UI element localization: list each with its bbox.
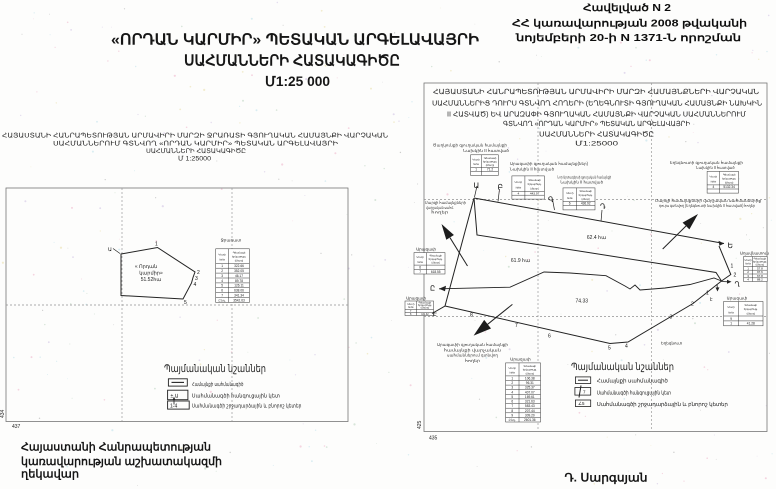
svg-text:96.31: 96.31	[526, 381, 534, 385]
svg-text:437: 437	[12, 424, 21, 430]
svg-text:5: 5	[221, 284, 223, 288]
svg-text:Գծամասի: Գծամասի	[528, 179, 541, 182]
svg-text:126.11: 126.11	[234, 284, 244, 288]
svg-text:Գծամասի: Գծամասի	[745, 304, 758, 307]
svg-text:5132.34: 5132.34	[723, 185, 735, 189]
svg-text:Պայմանական նշաններ: Պայմանական նշաններ	[164, 363, 266, 375]
svg-text:1: 1	[221, 264, 223, 268]
svg-text:(մետր): (մետր)	[486, 164, 495, 167]
svg-text:(մետր): (մետր)	[530, 188, 539, 191]
svg-text:207.44: 207.44	[525, 409, 535, 413]
svg-text:(մետր): (մետր)	[431, 262, 440, 265]
svg-text:3: 3	[670, 315, 673, 321]
svg-text:Գծամասի: Գծամասի	[233, 251, 246, 254]
svg-text:Արազափ: Արազափ	[510, 357, 531, 362]
svg-text:322.66: 322.66	[234, 264, 244, 268]
svg-text:51.52հա: 51.52հա	[141, 277, 162, 283]
svg-text:7: 7	[583, 390, 586, 395]
svg-text:երկարությ.: երկարությ.	[744, 308, 758, 311]
svg-text:ղեկավար: ղեկավար	[21, 469, 79, 481]
svg-text:Նախկին II հատված: Նախկին II հատված	[510, 167, 555, 172]
svg-text:Նախկին II հատված: Նախկին II հատված	[696, 165, 735, 170]
svg-text:Արազափ: Արազափ	[416, 246, 436, 251]
svg-text:Կետի: Կետի	[727, 305, 735, 309]
svg-text:Ա: Ա	[474, 181, 480, 190]
svg-text:89.78: 89.78	[235, 279, 243, 283]
svg-text:1-4: 1-4	[170, 403, 177, 409]
svg-text:1: 1	[730, 322, 732, 326]
svg-text:5: 5	[184, 300, 187, 306]
svg-text:սահմաններում գտնվող: սահմաններում գտնվող	[447, 353, 498, 358]
svg-text:4: 4	[625, 344, 628, 350]
svg-text:74.33: 74.33	[576, 299, 589, 305]
svg-text:Կետի: Կետի	[515, 180, 523, 184]
svg-text:Ընդ.: Ընդ.	[219, 298, 226, 302]
svg-text:6: 6	[548, 334, 551, 340]
svg-text:2: 2	[511, 381, 513, 385]
svg-text:Արազափի գյուղական համայնք(ներ): Արազափի գյուղական համայնք(ներ)	[510, 161, 589, 166]
svg-text:638.06: 638.06	[234, 289, 244, 293]
svg-text:ՀՀ կառավարության 2008 թվականի: ՀՀ կառավարության 2008 թվականի	[512, 19, 747, 30]
svg-text:№№: №№	[417, 261, 423, 264]
svg-text:երկարությ.: երկարությ.	[523, 369, 537, 372]
svg-text:88.2: 88.2	[757, 278, 763, 282]
svg-text:ՍԱՀՄԱՆՆԵՐՈՒՄ ԳՏՆՎՈՂ «ՈՐԴԱՆ ԿԱՐ: ՍԱՀՄԱՆՆԵՐՈՒՄ ԳՏՆՎՈՂ «ՈՐԴԱՆ ԿԱՐՄԻՐ» ՊԵՏԱԿ…	[53, 140, 339, 148]
svg-text:ՍԱՀՄԱՆՆԵՐԻՑ ԴՈՒՐՍ ԳՏՆՎՈՂ ՀՈՂԵՐ: ՍԱՀՄԱՆՆԵՐԻՑ ԴՈՒՐՍ ԳՏՆՎՈՂ ՀՈՂԵՐԻ (ԵՂԵԳՆՈՒ…	[432, 100, 762, 108]
svg-text:6: 6	[221, 289, 223, 293]
svg-text:(մետր): (մետր)	[235, 260, 244, 263]
svg-text:106.38: 106.38	[525, 377, 535, 381]
svg-text:Սահմանագծի հանգուցային կետ: Սահմանագծի հանգուցային կետ	[597, 390, 671, 396]
svg-text:Կետի: Կետի	[218, 252, 226, 256]
svg-text:(մետր): (մետր)	[581, 198, 590, 201]
svg-text:Գծամասի: Գծամասի	[524, 365, 537, 368]
svg-text:6: 6	[569, 202, 571, 206]
svg-text:Կետի: Կետի	[566, 191, 574, 195]
svg-text:Ը: Ը	[430, 285, 435, 293]
svg-text:583.43: 583.43	[525, 404, 535, 408]
svg-text:9: 9	[511, 413, 513, 417]
svg-text:Նախկին II հատված: Նախկին II հատված	[560, 180, 603, 185]
svg-text:4: 4	[194, 282, 197, 288]
svg-text:Ղ: Ղ	[735, 281, 741, 289]
svg-text:Կետի: Կետի	[710, 175, 718, 179]
svg-text:434: 434	[0, 409, 6, 418]
svg-text:№№: №№	[516, 187, 522, 190]
svg-text:Մ1:25000: Մ1:25000	[575, 140, 619, 148]
svg-text:Ընդ.: Ընդ.	[509, 418, 516, 422]
svg-text:46.17: 46.17	[235, 274, 243, 278]
svg-text:№№: №№	[473, 163, 479, 166]
svg-text:1: 1	[475, 167, 477, 171]
svg-text:Կետի: Կետի	[416, 255, 424, 259]
svg-text:Սահմանագծի հանգուցային կետ: Սահմանագծի հանգուցային կետ	[192, 392, 280, 399]
svg-text:1: 1	[511, 377, 513, 381]
svg-text:443.97: 443.97	[530, 191, 540, 195]
svg-text:9: 9	[730, 317, 732, 321]
svg-text:կարմիր»: կարմիր»	[139, 271, 163, 277]
svg-text:երկարությ.: երկարությ.	[528, 183, 542, 186]
svg-text:1: 1	[155, 242, 158, 248]
svg-text:407.07: 407.07	[525, 390, 535, 394]
svg-text:Սահմանագծի շրջադարձային և բնոր: Սահմանագծի շրջադարձային և բնորոշ կետեր	[597, 402, 728, 408]
svg-text:№№: №№	[510, 372, 516, 375]
svg-text:Նախկին II հատված: Նախկին II հատված	[463, 148, 509, 153]
svg-text:8: 8	[511, 409, 513, 413]
svg-text:ՍԱՀՄԱՆՆԵՐԻ ՀԱՏԱԿԱԳԻԾԸ: ՍԱՀՄԱՆՆԵՐԻ ՀԱՏԱԿԱԳԻԾԸ	[539, 131, 654, 139]
svg-text:3542.63: 3542.63	[233, 298, 245, 302]
svg-text:4: 4	[518, 191, 520, 195]
svg-text:Համայնքի սահմանագիծ: Համայնքի սահմանագիծ	[597, 379, 668, 385]
svg-text:2: 2	[734, 273, 737, 279]
svg-text:երկարությ.: երկարությ.	[579, 194, 593, 197]
svg-text:«ՈՐԴԱՆ ԿԱՐՄԻՐ» ՊԵՏԱԿԱՆ ԱՐԳԵԼԱՎ: «ՈՐԴԱՆ ԿԱՐՄԻՐ» ՊԵՏԱԿԱՆ ԱՐԳԵԼԱՎԱՅՐԻ	[111, 32, 480, 49]
svg-text:ՍԱՀՄԱՆՆԵՐԻ ՀԱՏԱԿԱԳԻԾԸ: ՍԱՀՄԱՆՆԵՐԻ ՀԱՏԱԿԱԳԻԾԸ	[146, 147, 246, 155]
svg-text:341.34: 341.34	[234, 293, 244, 297]
svg-text:ՍԱՀՄԱՆՆԵՐԻ ՀԱՏԱԿԱԳԻԾԸ: ՍԱՀՄԱՆՆԵՐԻ ՀԱՏԱԿԱԳԻԾԸ	[184, 53, 400, 70]
svg-text:Մ1:25 000: Մ1:25 000	[265, 74, 330, 89]
svg-text:61.9 հա: 61.9 հա	[511, 258, 530, 264]
svg-text:Պայմանական նշաններ: Պայմանական նշաններ	[571, 362, 674, 373]
svg-text:(մետր): (մետր)	[725, 181, 734, 184]
svg-text:Արազափի գյուղական համայնքի: Արազափի գյուղական համայնքի	[437, 342, 508, 347]
svg-text:4: 4	[713, 185, 715, 189]
svg-text:№№: №№	[219, 259, 225, 262]
svg-text:7: 7	[515, 323, 518, 329]
svg-text:325.37: 325.37	[525, 386, 535, 390]
svg-text:ՀԱՅԱՍՏԱՆԻ ՀԱՆՐԱՊԵՏՈՒԹՅԱՆ ԱՐՄԱՎ: ՀԱՅԱՍՏԱՆԻ ՀԱՆՐԱՊԵՏՈՒԹՅԱՆ ԱՐՄԱՎԻՐԻ ՄԱՐԶԻ …	[433, 88, 759, 96]
svg-text:Կետի: Կետի	[472, 157, 480, 161]
svg-text:8: 8	[470, 313, 473, 319]
svg-text:Հավելված N 2: Հավելված N 2	[583, 3, 672, 14]
svg-text:կառավարության աշխատակազմի: կառավարության աշխատակազմի	[21, 456, 222, 468]
svg-text:II ՀԱՏՎԱԾ) ԵՎ ԱՐԱԶԱՓԻ ԳՅՈՒՂԱԿԱ: II ՀԱՏՎԱԾ) ԵՎ ԱՐԱԶԱՓԻ ԳՅՈՒՂԱԿԱՆ ՀԱՄԱՅՆՔԻ…	[447, 111, 747, 119]
svg-text:№№: №№	[711, 181, 717, 184]
svg-text:Ա: Ա	[108, 247, 112, 253]
svg-text:№№: №№	[408, 306, 414, 309]
svg-text:(մետր): (մետր)	[747, 312, 756, 315]
svg-text:4: 4	[221, 279, 223, 283]
svg-text:Նոր Արտագերսի գյուղական համայն: Նոր Արտագերսի գյուղական համայնքի	[557, 174, 611, 179]
svg-text:161.32: 161.32	[421, 313, 429, 316]
svg-text:6: 6	[511, 400, 513, 404]
svg-text:321.63: 321.63	[525, 400, 535, 404]
svg-text:« Որդան: « Որդան	[135, 264, 157, 270]
svg-text:62.4 հա: 62.4 հա	[587, 235, 606, 241]
svg-text:2: 2	[221, 269, 223, 273]
svg-text:ԳՏՆՎՈՂ «ՈՐԴԱՆ ԿԱՐՄԻՐ» ՊԵՏԱԿԱՆ: ԳՏՆՎՈՂ «ՈՐԴԱՆ ԿԱՐՄԻՐ» ՊԵՏԱԿԱՆ ԱՐԳԵԼԱՎԱՅՐ…	[503, 120, 690, 128]
svg-text:Մ 1:25000: Մ 1:25000	[178, 155, 211, 163]
svg-text:41.28: 41.28	[747, 322, 755, 326]
svg-text:Բ: Բ	[498, 183, 504, 192]
svg-text:Հայաստանի Հանրապետության: Հայաստանի Հանրապետության	[21, 442, 211, 454]
svg-text:3: 3	[221, 274, 223, 278]
svg-text:Արազափ: Արազափ	[406, 296, 426, 301]
svg-text:№№: №№	[745, 263, 751, 266]
svg-text:Գծամասի: Գծամասի	[579, 190, 592, 193]
svg-text:№№: №№	[728, 311, 734, 314]
svg-text:1: 1	[731, 264, 734, 270]
svg-text:Կետի: Կետի	[508, 366, 516, 370]
svg-text:Է: Է	[433, 311, 437, 318]
svg-text:երկարությ.: երկարությ.	[722, 178, 736, 181]
svg-text:(մետր): (մետր)	[421, 307, 430, 310]
svg-text:352.05: 352.05	[234, 269, 244, 273]
svg-text:7: 7	[419, 270, 421, 274]
svg-text:Եղեգնուտ: Եղեգնուտ	[661, 341, 682, 346]
svg-text:Աղավնատուն: Աղավնատուն	[740, 250, 770, 255]
svg-text:Ե: Ե	[728, 241, 734, 250]
svg-text:Դ: Դ	[600, 202, 606, 211]
svg-text:∠5: ∠5	[578, 401, 585, 406]
svg-text:618.55: 618.55	[431, 270, 441, 274]
svg-text:(մետր): (մետր)	[526, 372, 535, 375]
svg-text:7: 7	[511, 404, 513, 408]
svg-text:436.92: 436.92	[581, 202, 591, 206]
svg-text:1: 1	[706, 291, 709, 297]
svg-text:2: 2	[691, 302, 694, 308]
svg-text:հողեր: հողեր	[431, 210, 448, 215]
svg-text:3: 3	[511, 386, 513, 390]
svg-text:Համայնքի սահմանագիծ: Համայնքի սահմանագիծ	[192, 381, 244, 388]
svg-text:169.61: 169.61	[525, 395, 535, 399]
svg-text:5: 5	[511, 395, 513, 399]
svg-text:Սահմանագծի շրջադարձային և բնոր: Սահմանագծի շրջադարձային և բնորոշ կետեր	[192, 403, 302, 410]
svg-text:է: է	[710, 297, 713, 303]
svg-text:№№: №№	[567, 197, 573, 200]
svg-text:Ծաղկունքի գյուղական համայնքի: Ծաղկունքի գյուղական համայնքի	[433, 142, 507, 147]
svg-text:Արազափ: Արազափ	[727, 295, 748, 300]
svg-text:425: 425	[417, 420, 423, 429]
svg-text:ՀԱՅԱՍՏԱՆԻ ՀԱՆՐԱՊԵՏՈՒԹՅԱՆ ԱՐՄԱՎ: ՀԱՅԱՍՏԱՆԻ ՀԱՆՐԱՊԵՏՈՒԹՅԱՆ ԱՐՄԱՎԻՐԻ ՄԱՐԶԻ …	[2, 132, 388, 140]
svg-text:Ջրառատ: Ջրառատ	[221, 238, 242, 243]
svg-text:հողեր: հողեր	[465, 358, 480, 363]
svg-text:5: 5	[608, 346, 611, 352]
svg-text:Դ. Սարգսյան: Դ. Սարգսյան	[565, 472, 648, 485]
svg-text:Գ: Գ	[548, 195, 554, 204]
svg-text:դուրս գտնվող (Եղեգնուտի նախկին: դուրս գտնվող (Եղեգնուտի նախկին II հատված…	[659, 203, 755, 208]
svg-text:71.2: 71.2	[487, 167, 493, 171]
svg-text:6: 6	[419, 266, 421, 270]
svg-text:309.20: 309.20	[525, 413, 535, 417]
svg-text:435: 435	[429, 436, 438, 442]
svg-text:Գծամասի: Գծամասի	[723, 174, 736, 177]
svg-text:երկարությ.: երկարությ.	[232, 256, 246, 259]
svg-text:4: 4	[511, 390, 513, 394]
svg-text:Կետի: Կետի	[744, 258, 752, 262]
svg-text:7: 7	[221, 293, 223, 297]
svg-text:2601.36: 2601.36	[524, 418, 536, 422]
svg-text:նոյեմբերի 20-ի N 1371-Ն որոշմա: նոյեմբերի 20-ի N 1371-Ն որոշման	[515, 33, 741, 44]
